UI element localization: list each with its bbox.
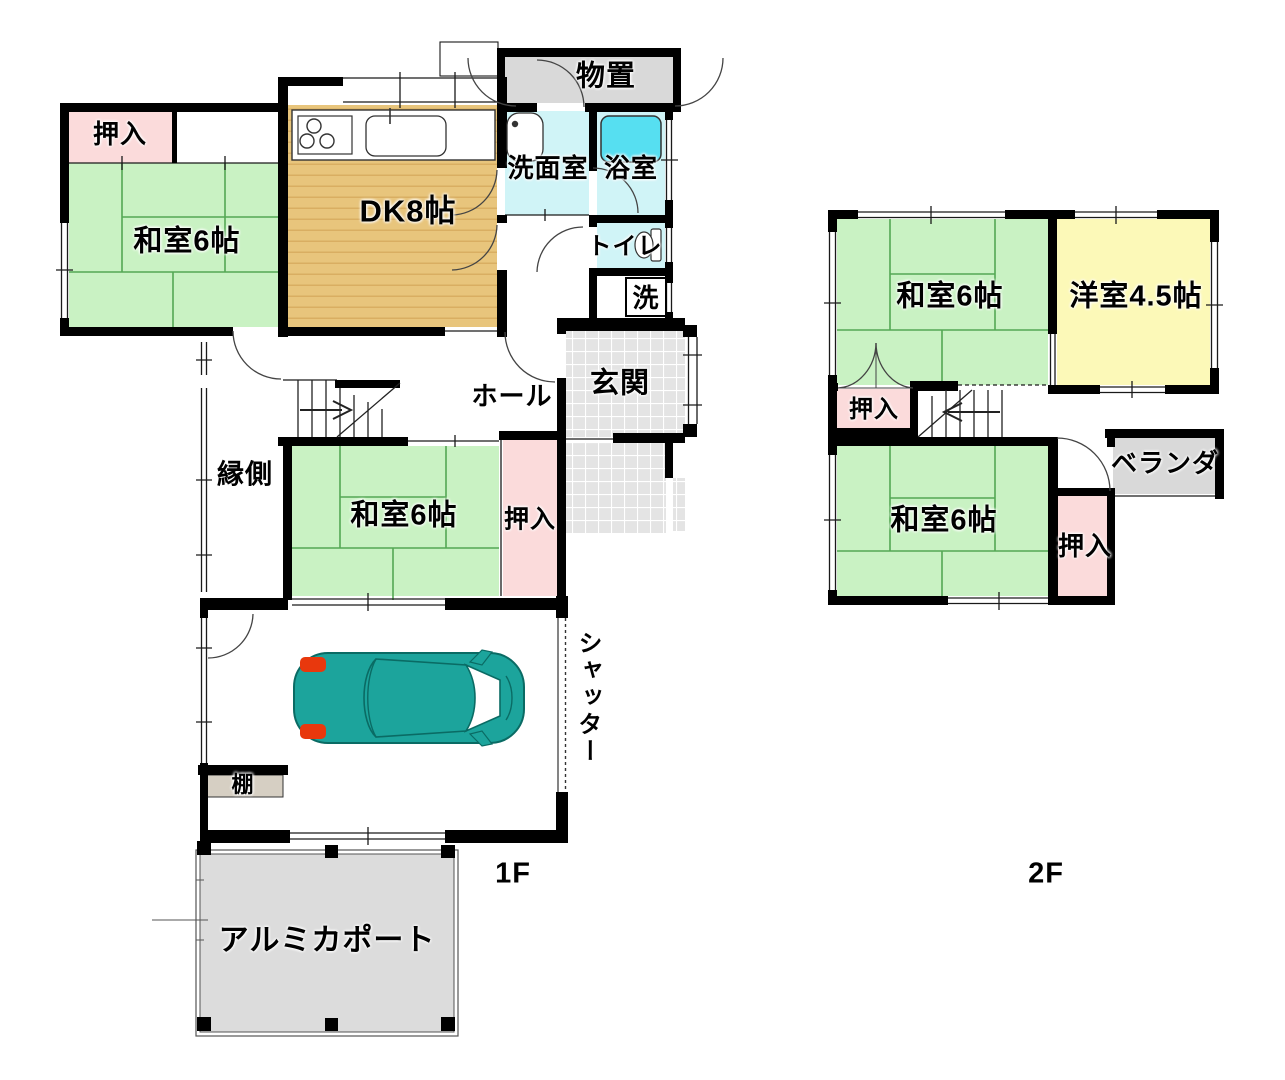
porch-tile-fill (566, 443, 666, 533)
floor-label-2f: 2F (1028, 860, 1064, 889)
kitchen-counter (292, 108, 495, 160)
stairs-1f (298, 380, 400, 437)
stairs-2f (918, 390, 1002, 437)
room-label-dk: DK8帖 (359, 196, 456, 227)
floorplan-canvas: 押入 和室6帖 DK8帖 物置 洗面室 浴室 トイレ 洗 ホール 玄関 縁側 和… (0, 0, 1285, 1080)
room-label-washitsu-c: 和室6帖 (896, 283, 1003, 312)
room-label-toilet: トイレ (588, 235, 663, 259)
sink-icon (366, 116, 446, 156)
room-label-shutter: シャッター (575, 631, 599, 766)
room-label-closet-nw-1f: 押入 (93, 121, 147, 147)
room-label-closet-c: 押入 (849, 398, 899, 422)
room-label-bathroom: 浴室 (604, 155, 658, 181)
room-label-washroom: 洗面室 (507, 155, 588, 181)
room-label-carport: アルミカポート (219, 926, 436, 956)
room-label-laundry: 洗 (632, 285, 659, 311)
room-label-engawa: 縁側 (217, 462, 273, 489)
room-label-washitsu-a: 和室6帖 (133, 228, 240, 257)
room-label-entrance: 玄関 (590, 370, 650, 399)
room-label-closet-d: 押入 (1058, 533, 1112, 559)
room-label-closet-b: 押入 (504, 508, 556, 533)
room-label-western-room: 洋室4.5帖 (1069, 283, 1202, 312)
floor-label-1f: 1F (495, 860, 531, 889)
room-label-storage: 物置 (576, 63, 636, 92)
room-label-hall: ホール (471, 383, 552, 409)
room-label-shelf: 棚 (231, 774, 254, 796)
shutter-opening (557, 618, 566, 792)
room-label-veranda: ベランダ (1111, 450, 1219, 476)
room-label-washitsu-d: 和室6帖 (890, 507, 997, 536)
car-icon (294, 650, 524, 746)
room-label-washitsu-b: 和室6帖 (350, 502, 457, 531)
